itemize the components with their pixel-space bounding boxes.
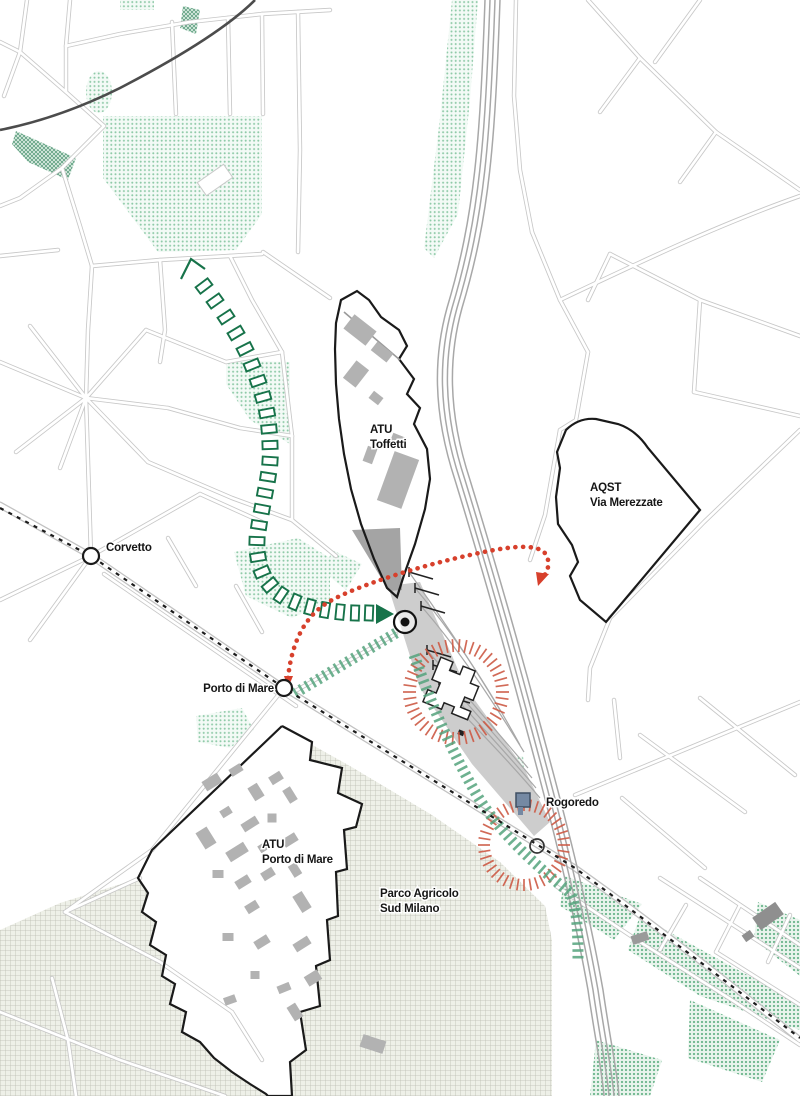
label-aqst-2: Via Merezzate — [590, 497, 663, 509]
red-route-arrow-east — [536, 572, 549, 586]
map-canvas: Corvetto Porto di Mare ATU Toffetti AQST… — [0, 0, 800, 1096]
label-atu-toffetti-2: Toffetti — [370, 439, 407, 451]
label-corvetto: Corvetto — [106, 542, 152, 554]
label-atu-porto-di-mare-1: ATU — [262, 839, 284, 851]
corvetto-station-marker — [83, 548, 99, 564]
yard-wedge — [352, 528, 402, 591]
label-aqst-1: AQST — [590, 482, 621, 494]
green-ray-start-arrow — [181, 259, 205, 279]
label-atu-toffetti-1: ATU — [370, 424, 392, 436]
aqst-boundary — [556, 419, 700, 622]
rogoredo-rail-station-marker — [516, 793, 530, 807]
label-atu-porto-di-mare-2: Porto di Mare — [262, 854, 333, 866]
green-ray-end-arrow — [376, 604, 394, 624]
rogoredo-station-stem — [518, 807, 523, 815]
label-parco-2: Sud Milano — [380, 903, 440, 915]
porto-di-mare-station-marker — [276, 680, 292, 696]
central-node-dot — [401, 618, 410, 627]
urban-plan-map: Corvetto Porto di Mare ATU Toffetti AQST… — [0, 0, 800, 1096]
label-porto-di-mare: Porto di Mare — [203, 683, 274, 695]
label-parco-1: Parco Agricolo — [380, 888, 459, 900]
label-rogoredo: Rogoredo — [546, 797, 599, 809]
